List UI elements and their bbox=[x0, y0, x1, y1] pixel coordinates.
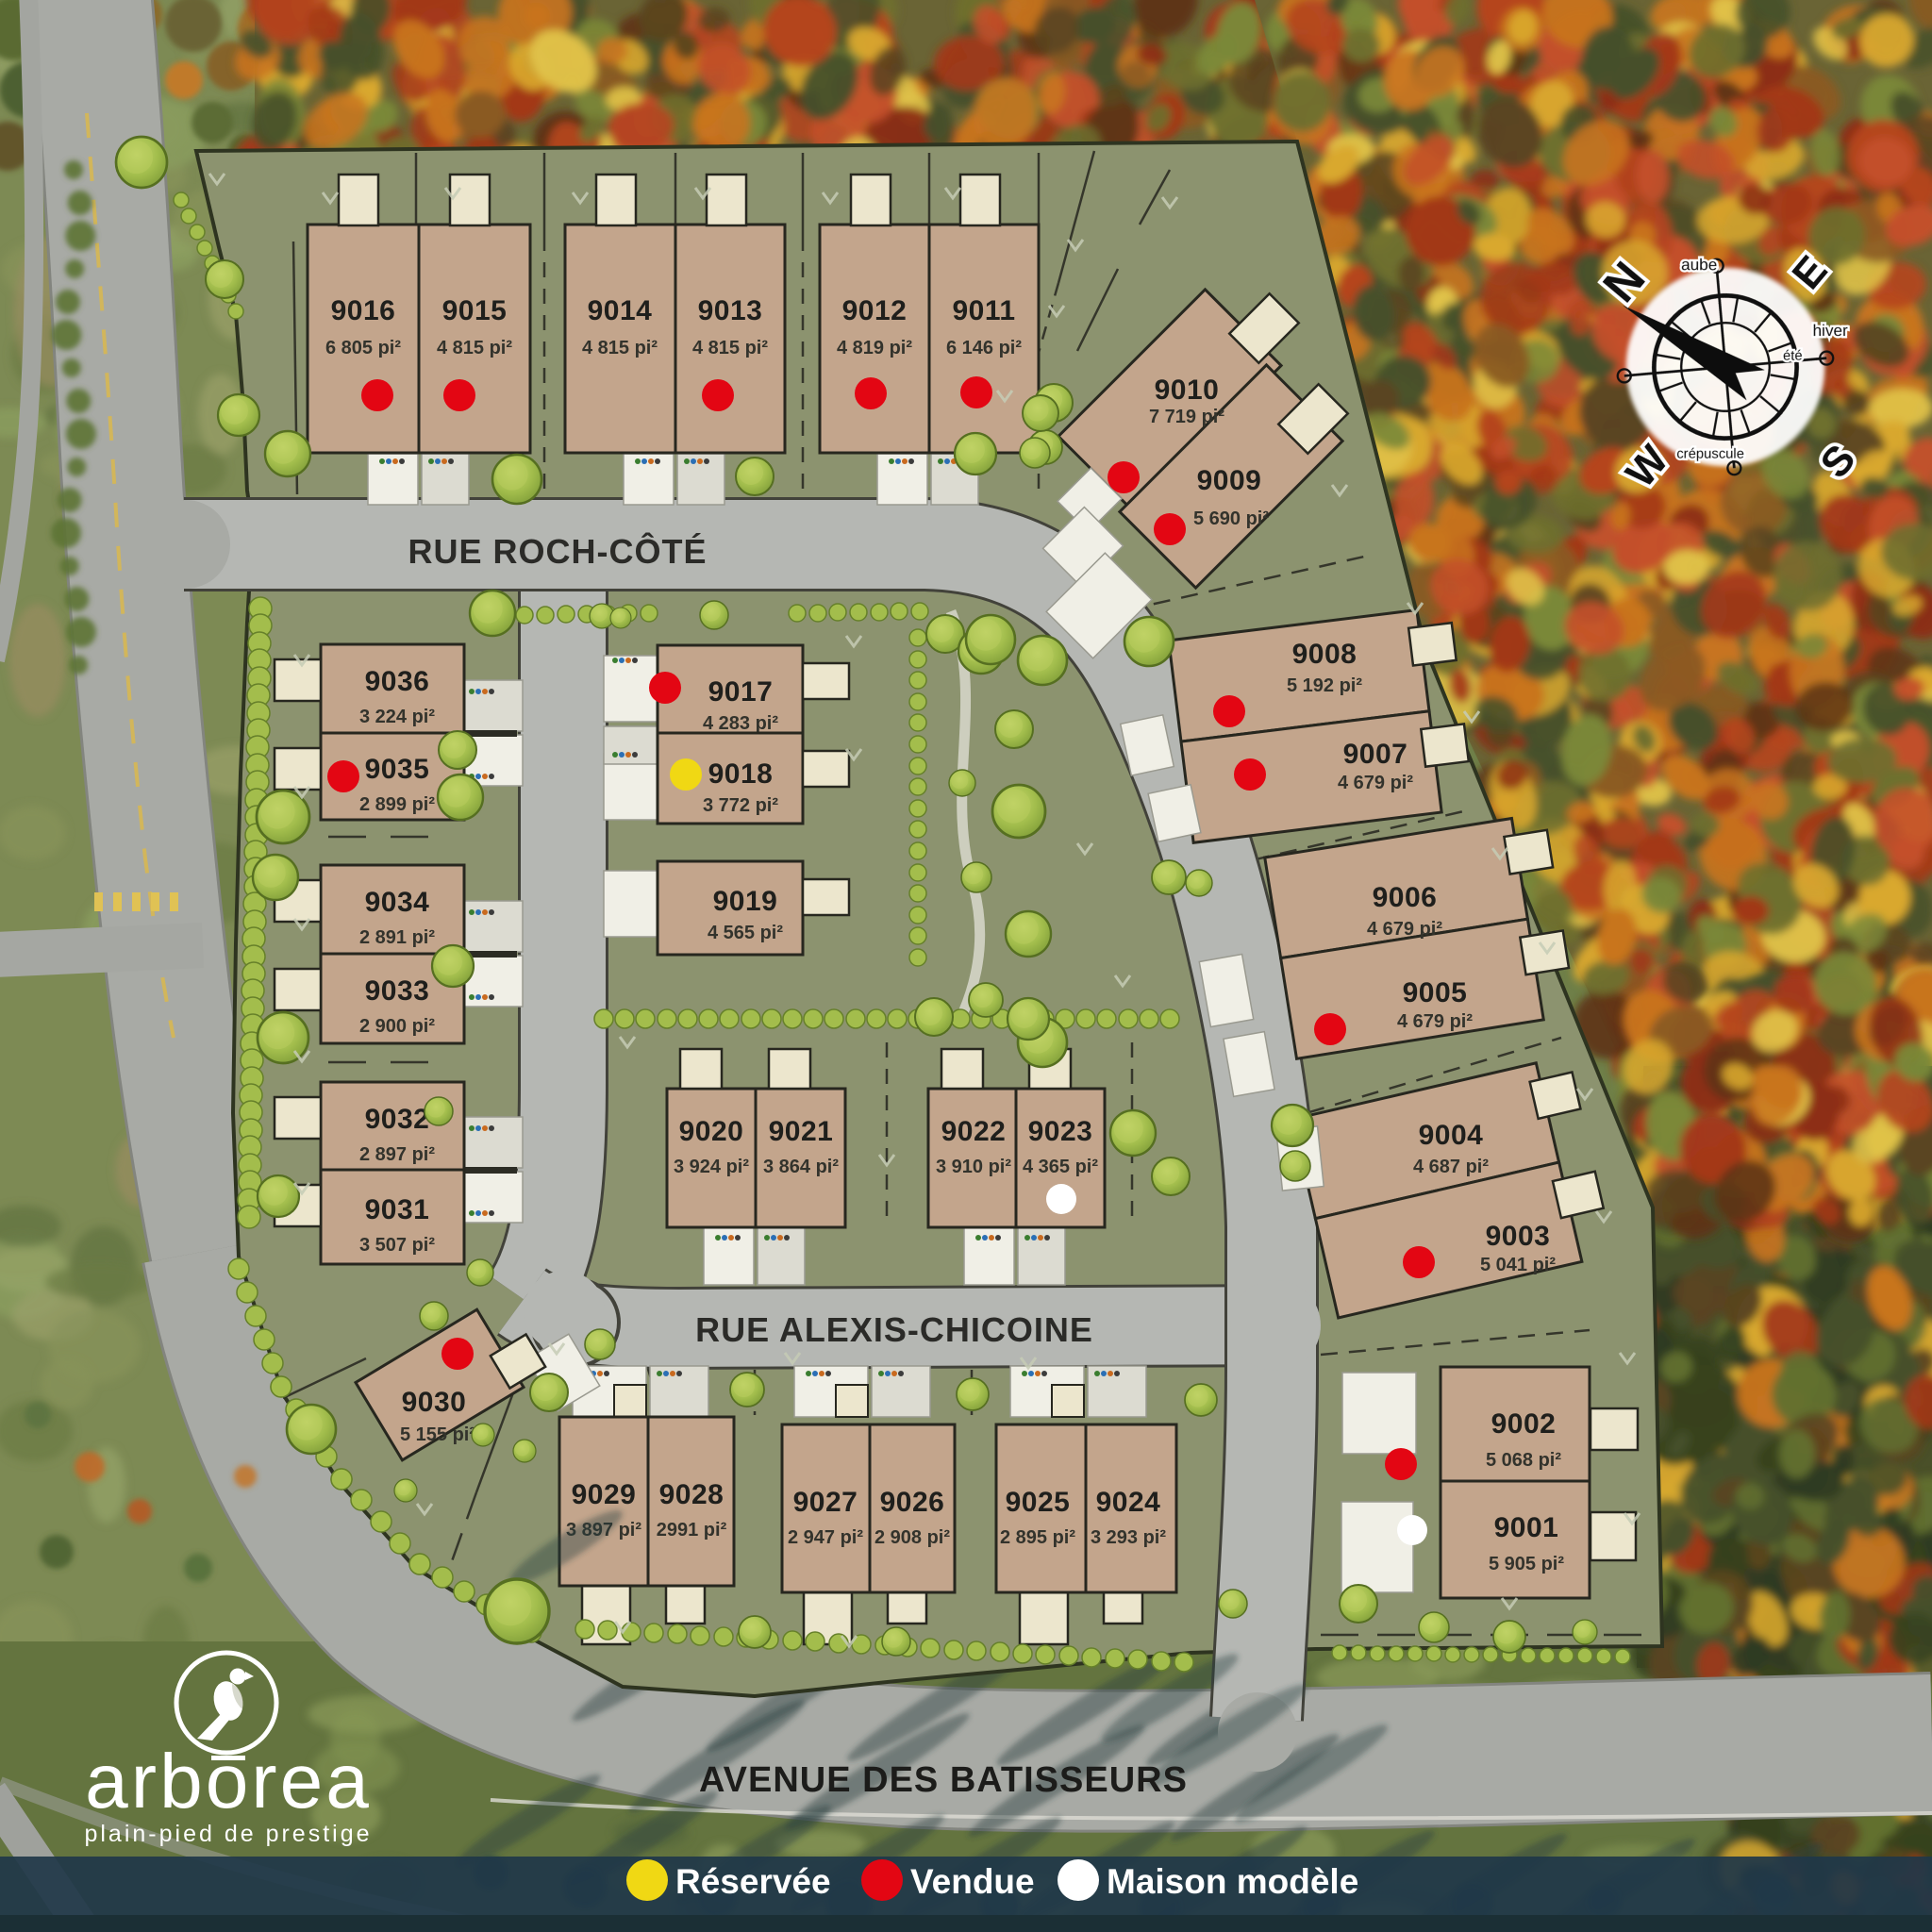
svg-text:9014: 9014 bbox=[588, 295, 653, 326]
svg-text:2 897 pi²: 2 897 pi² bbox=[359, 1144, 435, 1165]
svg-text:3 924 pi²: 3 924 pi² bbox=[674, 1157, 749, 1177]
svg-text:9007: 9007 bbox=[1343, 739, 1408, 770]
svg-text:2 899 pi²: 2 899 pi² bbox=[359, 794, 435, 815]
svg-text:3 293 pi²: 3 293 pi² bbox=[1091, 1527, 1166, 1548]
svg-text:9003: 9003 bbox=[1486, 1221, 1551, 1252]
svg-text:hiver: hiver bbox=[1813, 321, 1848, 340]
svg-text:été: été bbox=[1783, 349, 1803, 364]
svg-text:6 146 pi²: 6 146 pi² bbox=[946, 338, 1022, 358]
svg-text:9035: 9035 bbox=[365, 754, 430, 785]
svg-text:3 507 pi²: 3 507 pi² bbox=[359, 1235, 435, 1256]
svg-text:4 679 pi²: 4 679 pi² bbox=[1397, 1011, 1473, 1032]
svg-text:9015: 9015 bbox=[442, 295, 508, 326]
svg-text:5 041 pi²: 5 041 pi² bbox=[1480, 1255, 1556, 1275]
svg-text:4 565 pi²: 4 565 pi² bbox=[708, 923, 783, 943]
svg-text:2 947 pi²: 2 947 pi² bbox=[788, 1527, 863, 1548]
svg-text:5 155 pi²: 5 155 pi² bbox=[400, 1424, 475, 1445]
svg-text:9002: 9002 bbox=[1491, 1408, 1557, 1440]
svg-text:arborea: arborea bbox=[85, 1739, 372, 1824]
svg-text:2 900 pi²: 2 900 pi² bbox=[359, 1016, 435, 1037]
svg-text:4 365 pi²: 4 365 pi² bbox=[1023, 1157, 1098, 1177]
svg-text:9010: 9010 bbox=[1155, 375, 1220, 406]
svg-text:9012: 9012 bbox=[842, 295, 908, 326]
svg-text:3 910 pi²: 3 910 pi² bbox=[936, 1157, 1011, 1177]
svg-text:9031: 9031 bbox=[365, 1194, 430, 1225]
svg-text:crépuscule: crépuscule bbox=[1676, 447, 1744, 462]
svg-text:9016: 9016 bbox=[331, 295, 396, 326]
svg-text:Réservée: Réservée bbox=[675, 1862, 831, 1901]
svg-text:3 224 pi²: 3 224 pi² bbox=[359, 707, 435, 727]
svg-text:9032: 9032 bbox=[365, 1104, 430, 1135]
svg-text:9026: 9026 bbox=[880, 1487, 945, 1518]
svg-text:RUE ROCH-CÔTÉ: RUE ROCH-CÔTÉ bbox=[408, 531, 708, 571]
svg-text:aube: aube bbox=[1681, 255, 1717, 274]
svg-text:4 283 pi²: 4 283 pi² bbox=[703, 713, 778, 734]
svg-text:2 895 pi²: 2 895 pi² bbox=[1000, 1527, 1075, 1548]
svg-text:9006: 9006 bbox=[1373, 882, 1438, 913]
svg-text:9020: 9020 bbox=[679, 1116, 744, 1147]
svg-text:5 690 pi²: 5 690 pi² bbox=[1193, 508, 1269, 529]
svg-text:9019: 9019 bbox=[713, 886, 778, 917]
svg-text:9013: 9013 bbox=[698, 295, 763, 326]
svg-text:9024: 9024 bbox=[1096, 1487, 1161, 1518]
svg-text:9021: 9021 bbox=[769, 1116, 834, 1147]
svg-text:9033: 9033 bbox=[365, 975, 430, 1007]
svg-text:9027: 9027 bbox=[793, 1487, 858, 1518]
svg-text:6 805 pi²: 6 805 pi² bbox=[325, 338, 401, 358]
svg-text:9017: 9017 bbox=[708, 676, 774, 708]
svg-text:4 815 pi²: 4 815 pi² bbox=[692, 338, 768, 358]
svg-text:9001: 9001 bbox=[1494, 1512, 1559, 1543]
svg-text:9030: 9030 bbox=[402, 1387, 467, 1418]
svg-text:RUE ALEXIS-CHICOINE: RUE ALEXIS-CHICOINE bbox=[695, 1310, 1093, 1349]
svg-text:9034: 9034 bbox=[365, 887, 430, 918]
svg-text:9022: 9022 bbox=[941, 1116, 1007, 1147]
svg-text:4 679 pi²: 4 679 pi² bbox=[1338, 773, 1413, 793]
svg-text:5 068 pi²: 5 068 pi² bbox=[1486, 1450, 1561, 1471]
svg-text:9005: 9005 bbox=[1403, 977, 1468, 1008]
svg-text:9011: 9011 bbox=[952, 295, 1015, 326]
svg-text:plain-pied de prestige: plain-pied de prestige bbox=[84, 1821, 372, 1847]
svg-text:9036: 9036 bbox=[365, 666, 430, 697]
svg-text:2991 pi²: 2991 pi² bbox=[657, 1520, 727, 1541]
svg-text:Vendue: Vendue bbox=[910, 1862, 1035, 1901]
svg-text:9008: 9008 bbox=[1292, 639, 1357, 670]
svg-text:9025: 9025 bbox=[1006, 1487, 1071, 1518]
svg-text:9018: 9018 bbox=[708, 758, 774, 790]
svg-text:9004: 9004 bbox=[1419, 1120, 1484, 1151]
svg-text:Maison modèle: Maison modèle bbox=[1107, 1862, 1358, 1901]
svg-text:9029: 9029 bbox=[572, 1479, 637, 1510]
svg-text:4 819 pi²: 4 819 pi² bbox=[837, 338, 912, 358]
svg-text:7 719 pi²: 7 719 pi² bbox=[1149, 407, 1224, 427]
svg-text:9009: 9009 bbox=[1197, 465, 1262, 496]
svg-text:AVENUE DES BATISSEURS: AVENUE DES BATISSEURS bbox=[699, 1760, 1188, 1800]
svg-text:4 815 pi²: 4 815 pi² bbox=[582, 338, 658, 358]
svg-text:4 815 pi²: 4 815 pi² bbox=[437, 338, 512, 358]
svg-text:9028: 9028 bbox=[659, 1479, 724, 1510]
svg-text:5 192 pi²: 5 192 pi² bbox=[1287, 675, 1362, 696]
svg-text:4 687 pi²: 4 687 pi² bbox=[1413, 1157, 1489, 1177]
svg-text:2 908 pi²: 2 908 pi² bbox=[874, 1527, 950, 1548]
svg-text:5 905 pi²: 5 905 pi² bbox=[1489, 1554, 1564, 1574]
svg-text:3 864 pi²: 3 864 pi² bbox=[763, 1157, 839, 1177]
svg-text:2 891 pi²: 2 891 pi² bbox=[359, 927, 435, 948]
svg-text:9023: 9023 bbox=[1028, 1116, 1093, 1147]
svg-text:4 679 pi²: 4 679 pi² bbox=[1367, 919, 1442, 940]
svg-text:3 772 pi²: 3 772 pi² bbox=[703, 795, 778, 816]
